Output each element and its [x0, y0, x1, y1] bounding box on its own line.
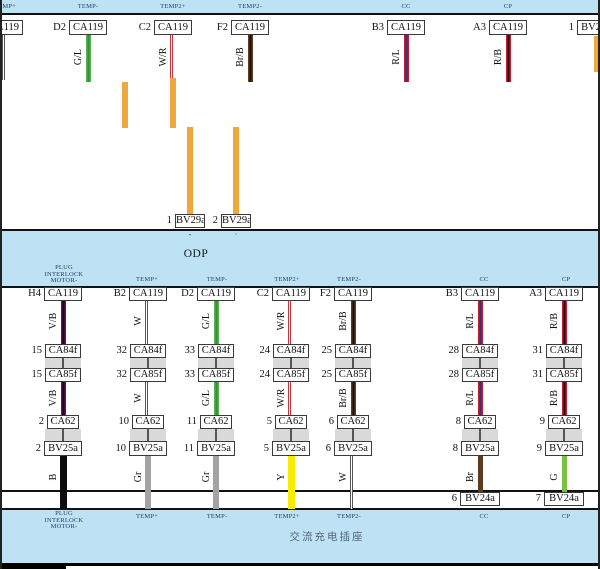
pin-label: 5 [247, 415, 272, 429]
wire-code-label: W [133, 381, 145, 415]
connector-box-bv25a: BV25a [272, 441, 310, 456]
pin-label: F2 [306, 287, 331, 301]
pin-label: 32 [102, 344, 127, 358]
column-function-label: TEMP2+ [160, 4, 185, 11]
pin-label: 11 [172, 415, 197, 429]
column-function-label: TEMP2+ [274, 277, 299, 284]
wire-y [288, 456, 295, 509]
wire-br-b [351, 301, 356, 344]
connector-box-ca119: CA119 [334, 287, 372, 301]
joint-wire-line [479, 358, 481, 368]
column-function-label: TEMP+ [136, 514, 158, 521]
column-function-label: MOTOR- [51, 524, 78, 531]
wire-code-label: Br [465, 460, 477, 494]
pin-label: 5 [244, 441, 269, 456]
wire-code-label: R/B [493, 40, 505, 74]
joint-wire-line [352, 429, 354, 441]
pin-label: 15 [17, 344, 42, 358]
pin-label: 31 [518, 368, 543, 382]
wire-code-label: R/B [549, 304, 561, 338]
wire-code-label: G/L [201, 381, 213, 415]
pin-label: B3 [433, 287, 458, 301]
wire-r-b [562, 382, 567, 415]
pin-label: 2 [19, 415, 44, 429]
pin-label: 33 [170, 368, 195, 382]
column-function-label: TEMP2- [337, 277, 361, 284]
joint-wire-line [352, 358, 354, 368]
wire-code-label: W/R [276, 304, 288, 338]
wire-code-label: V/B [48, 304, 60, 338]
connector-box-ca85f: CA85f [335, 368, 371, 382]
pin-label: 9 [517, 441, 542, 456]
connector-box-ca62: CA62 [47, 415, 79, 429]
pin-label: B3 [359, 20, 384, 35]
pin-label: 31 [518, 344, 543, 358]
connector-box-ca62: CA62 [464, 415, 496, 429]
wire-code-label: R/L [465, 304, 477, 338]
pin-label: 33 [170, 344, 195, 358]
connector-box-ca84f: CA84f [130, 344, 166, 358]
connector-box-bv24a: BV24a [544, 492, 584, 506]
connector-box-ca85f: CA85f [546, 368, 582, 382]
joint-wire-line [62, 429, 64, 441]
wire-code-label: G/L [201, 304, 213, 338]
wire-or [233, 127, 239, 214]
column-function-label: TEMP- [207, 277, 228, 284]
page-left-edge [0, 0, 2, 569]
connector-box-bv25a: BV25a [129, 441, 167, 456]
connector-box-bv25a: BV25a [545, 441, 583, 456]
wire-br-b [351, 382, 356, 415]
pin-label: A3 [461, 20, 486, 35]
connector-box-ca84f: CA84f [546, 344, 582, 358]
connector-box-bv25a: BV25a [461, 441, 499, 456]
connector-box-ca62: CA62 [275, 415, 307, 429]
connector-box-ca119: CA119 [461, 287, 499, 301]
wire-code-label: R/L [465, 381, 477, 415]
wire-code-label: W/R [276, 381, 288, 415]
connector-box-ca119: CA119 [154, 20, 192, 35]
pin-label: 28 [434, 368, 459, 382]
pin-label: C2 [126, 20, 151, 35]
wire-r-b [562, 301, 567, 344]
wire-w-r [288, 382, 291, 415]
joint-wire-line [215, 429, 217, 441]
wire-code-label: Gr [201, 460, 213, 494]
column-function-label: TEMP+ [136, 277, 158, 284]
connector-box-ca84f: CA84f [45, 344, 81, 358]
pin-label: 11 [169, 441, 194, 456]
wire-g-l [214, 301, 219, 344]
wire-or [170, 78, 176, 128]
page-corner-mark [0, 563, 66, 569]
pin-label: 6 [306, 441, 331, 456]
connector-box-ca62: CA62 [337, 415, 369, 429]
pin-label: 24 [245, 368, 270, 382]
connector-box-ca85f: CA85f [45, 368, 81, 382]
pin-label: 6 [432, 492, 457, 506]
joint-wire-line [147, 358, 149, 368]
pin-label: 28 [434, 344, 459, 358]
pin-label: D2 [169, 287, 194, 301]
connector-box-bv25a: BV25a [197, 441, 235, 456]
wire-w [350, 456, 353, 509]
wire-code-label: R/L [391, 40, 403, 74]
pin-label: 9 [520, 415, 545, 429]
connector-box-ca85f: CA85f [198, 368, 234, 382]
pin-label: D2 [41, 20, 66, 35]
wire-w-r [288, 301, 291, 344]
wire-or [122, 82, 128, 128]
joint-wire-line [215, 358, 217, 368]
wire-w [2, 35, 5, 80]
connector-box-ca62: CA62 [548, 415, 580, 429]
wire-code-label: Br/B [235, 40, 247, 74]
wire-code-label: W [338, 460, 350, 494]
wire-r-b [506, 35, 511, 82]
wire-r-l [404, 35, 409, 82]
wire-code-label: Gr [133, 460, 145, 494]
wire-w-r [170, 35, 173, 78]
connector-box-bv25a: BV25a [334, 441, 372, 456]
wire-code-label: V/B [48, 381, 60, 415]
joint-wire-line [147, 429, 149, 441]
connector-box-ca85f: CA85f [130, 368, 166, 382]
joint-wire-line [290, 358, 292, 368]
wire-g-l [214, 382, 219, 415]
pin-label: 10 [104, 415, 129, 429]
pin-label: 25 [307, 344, 332, 358]
connector-box-bv25a: BV25a [44, 441, 82, 456]
connector-box-ca119: CA119 [129, 287, 167, 301]
wire-code-label: Br/B [338, 304, 350, 338]
connector-box-ca62: CA62 [200, 415, 232, 429]
column-function-label: CC [401, 4, 410, 11]
joint-wire-line [479, 429, 481, 441]
charge-socket-title-chinese: 交流充电插座 [290, 529, 365, 544]
joint-wire-line [563, 358, 565, 368]
column-function-label: CC [479, 277, 488, 284]
connector-box-ca84f: CA84f [462, 344, 498, 358]
connector-box-ca119: CA119 [197, 287, 235, 301]
wire-w [145, 301, 148, 344]
wire-br [478, 456, 483, 492]
wire-g [562, 456, 567, 492]
pin-label: 1 [147, 214, 172, 228]
pin-label: C2 [244, 287, 269, 301]
wire-r-l [478, 382, 483, 415]
wire-br-b [248, 35, 253, 82]
connector-box-ca119: CA119 [44, 287, 82, 301]
connector-box-ca119: CA119 [545, 287, 583, 301]
wire-gr [213, 456, 219, 509]
polarity-tick: · [235, 231, 238, 239]
column-function-label: TEMP2+ [274, 514, 299, 521]
connector-box-ca119: CA119 [272, 287, 310, 301]
pin-label: 8 [433, 441, 458, 456]
column-function-label: CP [562, 277, 570, 284]
wire-b [60, 456, 67, 509]
wire-code-label: W/R [158, 40, 170, 74]
odp-component-band [0, 229, 600, 288]
wire-g-l [86, 35, 91, 82]
column-function-label: TEMP+ [0, 4, 16, 11]
connector-box-ca84f: CA84f [273, 344, 309, 358]
column-function-label: CC [479, 514, 488, 521]
column-function-label: MOTOR- [51, 278, 78, 285]
column-function-label: TEMP2- [337, 514, 361, 521]
wiring-diagram: ODP 交流充电插座 TEMP+CA119TEMP-D2CA119G/LTEMP… [0, 0, 600, 569]
wire-w [145, 382, 148, 415]
wire-code-label: W [133, 304, 145, 338]
pin-label: 25 [307, 368, 332, 382]
column-function-label: TEMP2- [238, 4, 262, 11]
connector-box-ca84f: CA84f [198, 344, 234, 358]
connector-box-bv29a: BV29a [577, 20, 600, 35]
pin-label: 10 [101, 441, 126, 456]
pin-label: 7 [516, 492, 541, 506]
wire-v-b [61, 301, 66, 344]
pin-label: 2 [193, 214, 218, 228]
wire-v-b [61, 382, 66, 415]
column-function-label: TEMP- [207, 514, 228, 521]
joint-wire-line [62, 358, 64, 368]
connector-box-ca119: CA119 [231, 20, 269, 35]
pin-label: 32 [102, 368, 127, 382]
pin-label: 24 [245, 344, 270, 358]
wire-or [187, 127, 193, 214]
pin-label: 2 [16, 441, 41, 456]
wire-code-label: G [549, 460, 561, 494]
pin-label: B2 [101, 287, 126, 301]
connector-box-ca62: CA62 [132, 415, 164, 429]
column-function-label: CP [504, 4, 512, 11]
column-function-label: CP [562, 514, 570, 521]
pin-label: 15 [17, 368, 42, 382]
connector-box-ca119: CA119 [387, 20, 425, 35]
connector-box-bv29a: BV29a [221, 214, 251, 228]
pin-label: 1 [549, 20, 574, 35]
wire-code-label: Br/B [338, 381, 350, 415]
wire-code-label: G/L [73, 40, 85, 74]
connector-box-bv24a: BV24a [460, 492, 500, 506]
pin-label: 8 [436, 415, 461, 429]
connector-box-ca85f: CA85f [273, 368, 309, 382]
connector-box-ca119: CA119 [0, 20, 23, 35]
pin-label: H4 [16, 287, 41, 301]
joint-wire-line [563, 429, 565, 441]
polarity-tick: - [189, 231, 192, 239]
connector-box-ca119: CA119 [69, 20, 107, 35]
wire-gr [145, 456, 151, 509]
connector-box-ca119: CA119 [489, 20, 527, 35]
joint-wire-line [290, 429, 292, 441]
column-function-label: TEMP- [78, 4, 99, 11]
pin-label: 6 [309, 415, 334, 429]
connector-box-ca84f: CA84f [335, 344, 371, 358]
separator-line [0, 490, 600, 492]
connector-box-ca85f: CA85f [462, 368, 498, 382]
wire-r-l [478, 301, 483, 344]
pin-label: A3 [517, 287, 542, 301]
wire-code-label: Y [276, 460, 288, 494]
wire-code-label: B [48, 460, 60, 494]
wire-code-label: R/B [549, 381, 561, 415]
pin-label: F2 [203, 20, 228, 35]
odp-component-title: ODP [184, 248, 209, 260]
